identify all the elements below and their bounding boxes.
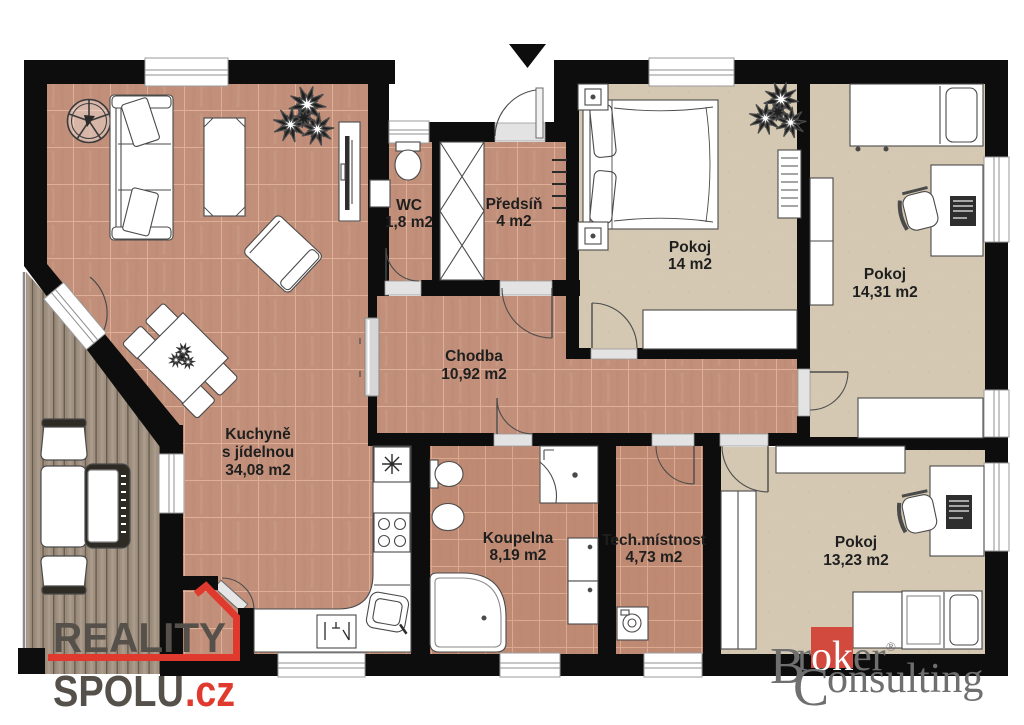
- svg-text:14 m2: 14 m2: [668, 256, 712, 273]
- svg-text:WC: WC: [396, 197, 422, 214]
- svg-text:onsulting: onsulting: [827, 656, 983, 702]
- svg-text:®: ®: [886, 639, 896, 654]
- svg-text:Pokoj: Pokoj: [864, 266, 906, 283]
- svg-text:Předsíň: Předsíň: [486, 196, 543, 213]
- svg-text:Koupelna: Koupelna: [483, 530, 554, 547]
- svg-text:34,08 m2: 34,08 m2: [225, 462, 291, 479]
- svg-text:13,23 m2: 13,23 m2: [823, 552, 889, 569]
- svg-text:.cz: .cz: [185, 667, 235, 716]
- svg-text:4,73 m2: 4,73 m2: [626, 549, 683, 566]
- svg-text:C: C: [793, 657, 829, 717]
- svg-text:14,31 m2: 14,31 m2: [852, 284, 918, 301]
- svg-text:Chodba: Chodba: [445, 348, 503, 365]
- svg-text:Pokoj: Pokoj: [835, 534, 877, 551]
- svg-text:s jídelnou: s jídelnou: [222, 444, 294, 461]
- svg-text:REALITY: REALITY: [53, 614, 226, 661]
- svg-text:10,92 m2: 10,92 m2: [441, 366, 507, 383]
- svg-text:4 m2: 4 m2: [496, 213, 531, 230]
- svg-text:1,8 m2: 1,8 m2: [385, 214, 433, 231]
- svg-text:Tech.místnost: Tech.místnost: [602, 532, 706, 549]
- svg-text:8,19 m2: 8,19 m2: [490, 547, 547, 564]
- svg-text:Kuchyně: Kuchyně: [225, 426, 291, 443]
- svg-text:SPOLU: SPOLU: [53, 667, 184, 716]
- svg-text:Pokoj: Pokoj: [669, 239, 711, 256]
